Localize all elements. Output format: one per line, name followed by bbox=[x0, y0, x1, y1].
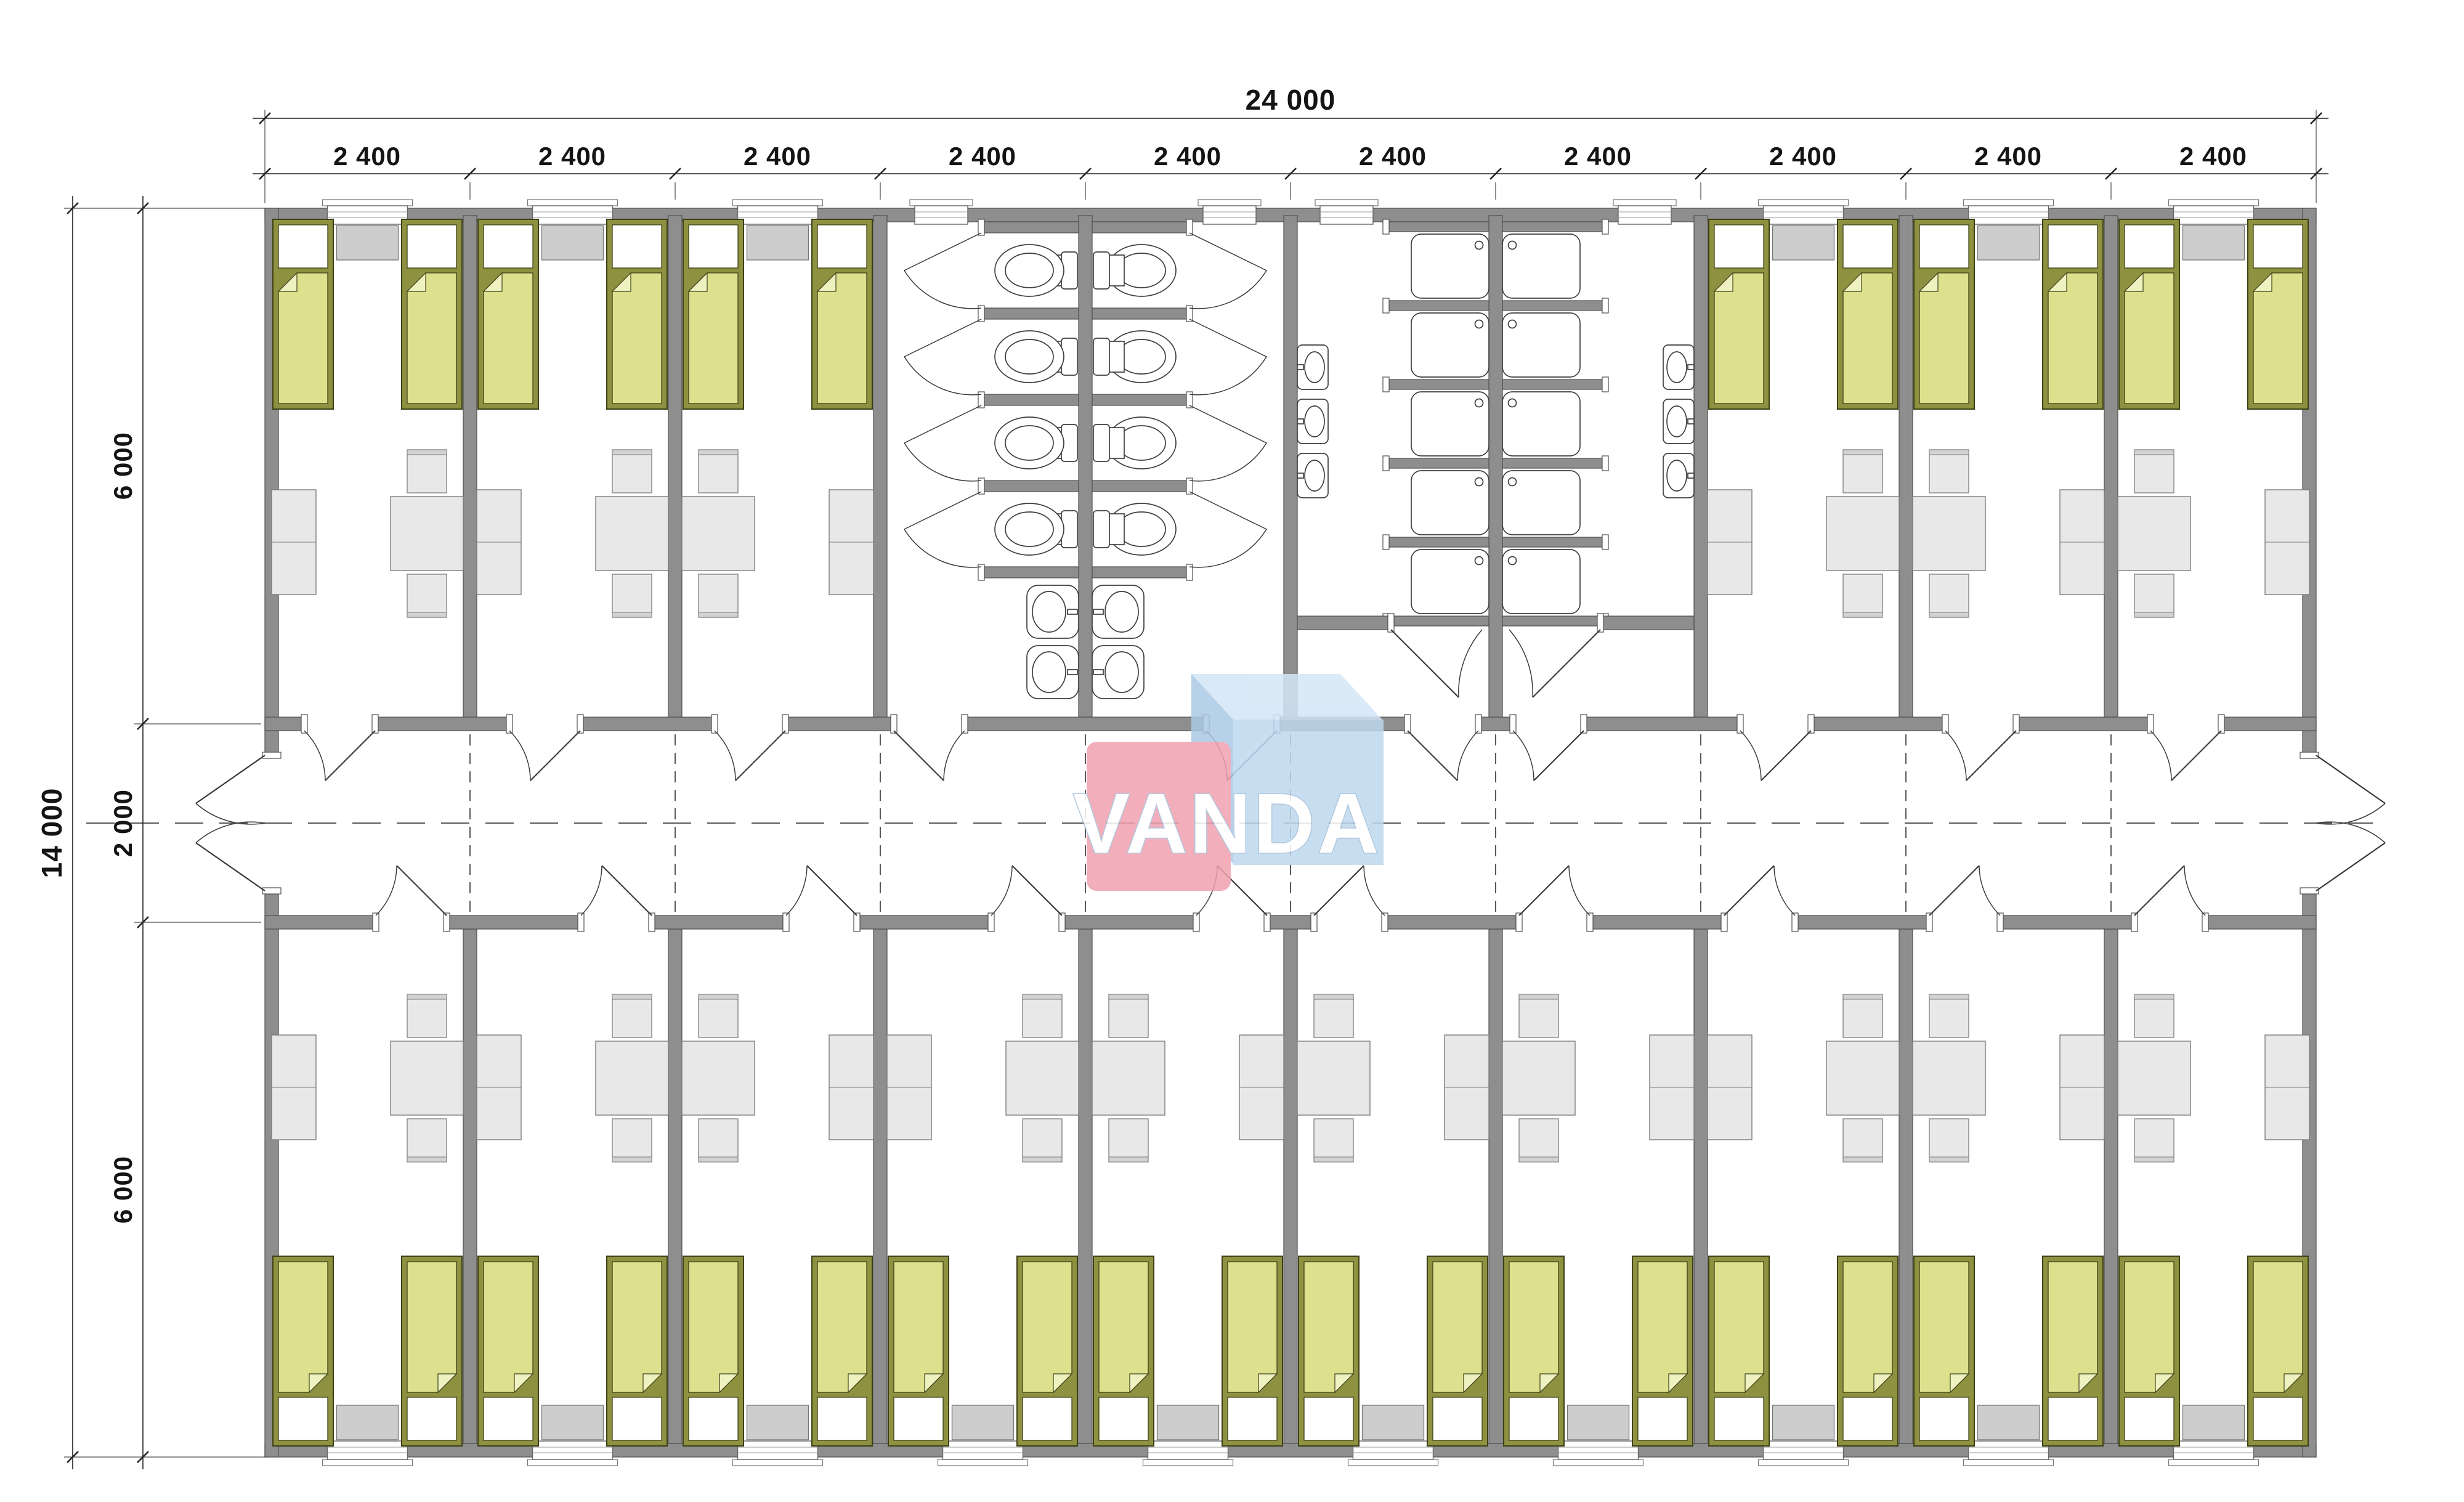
door-jamb bbox=[2300, 888, 2319, 894]
corridor-wall-north bbox=[965, 717, 1206, 731]
bed bbox=[1914, 219, 1974, 409]
bed-blanket bbox=[1714, 273, 1764, 404]
partition-wall bbox=[1899, 216, 1913, 717]
window bbox=[1148, 1441, 1228, 1459]
chair-back bbox=[1109, 1157, 1148, 1162]
wardrobe bbox=[477, 490, 521, 595]
shower-divider bbox=[1502, 380, 1605, 389]
bed-pillow bbox=[2048, 1397, 2097, 1440]
wardrobe bbox=[1445, 1035, 1489, 1140]
chair-back bbox=[612, 450, 652, 455]
shower-tray bbox=[1502, 313, 1580, 377]
table bbox=[1006, 1041, 1079, 1115]
door-jamb bbox=[1059, 913, 1065, 932]
bed bbox=[683, 1256, 744, 1446]
wc-stall-divider bbox=[981, 567, 1079, 578]
bed-pillow bbox=[1714, 1397, 1764, 1440]
door-swing bbox=[1364, 866, 1385, 915]
chair bbox=[2134, 994, 2174, 1037]
tap bbox=[1068, 609, 1077, 614]
bed-blanket bbox=[817, 273, 867, 404]
chair bbox=[699, 450, 738, 493]
shower-divider bbox=[1386, 301, 1489, 311]
chair bbox=[1314, 1119, 1353, 1162]
partition-wall bbox=[668, 216, 682, 717]
partition-wall bbox=[873, 216, 887, 717]
radiator bbox=[1978, 225, 2040, 260]
window bbox=[1203, 206, 1256, 224]
sink-bowl bbox=[1667, 460, 1687, 491]
shower-divider bbox=[1386, 380, 1489, 389]
bed bbox=[1093, 1256, 1154, 1446]
shower-drain bbox=[1475, 320, 1483, 328]
door-jamb bbox=[577, 715, 583, 733]
bed-pillow bbox=[1228, 1397, 1277, 1440]
radiator bbox=[1773, 225, 1834, 260]
chair-back bbox=[407, 612, 447, 617]
door-jamb bbox=[1383, 219, 1389, 234]
module-dimension: 2 400 bbox=[1769, 142, 1837, 171]
door-leaf bbox=[1724, 866, 1774, 915]
door-swing bbox=[1945, 731, 1966, 781]
window-sill bbox=[1964, 1459, 2054, 1466]
shower-drain bbox=[1509, 557, 1517, 565]
door-jamb bbox=[1383, 298, 1389, 313]
shower-divider bbox=[1502, 537, 1605, 547]
door-jamb bbox=[649, 913, 655, 932]
bed-pillow bbox=[817, 1397, 867, 1440]
bed bbox=[888, 1256, 949, 1446]
bed-blanket bbox=[1228, 1262, 1277, 1392]
window-sill bbox=[1759, 200, 1849, 206]
bed-pillow bbox=[407, 1397, 456, 1440]
bed-pillow bbox=[2125, 225, 2174, 268]
basin-bowl bbox=[1032, 652, 1066, 692]
chair bbox=[612, 1119, 652, 1162]
bed-pillow bbox=[1843, 1397, 1892, 1440]
corridor-wall-south bbox=[1795, 915, 1929, 929]
window bbox=[533, 1441, 613, 1459]
door-jamb bbox=[1382, 913, 1388, 932]
chair bbox=[1843, 450, 1882, 493]
shower-vestibule-wall bbox=[1297, 616, 1391, 630]
wc-stall-divider bbox=[1092, 567, 1189, 578]
door-swing bbox=[581, 866, 602, 915]
module-dimension: 2 400 bbox=[1564, 142, 1632, 171]
shower-divider bbox=[1502, 222, 1605, 232]
door-jamb bbox=[2013, 715, 2019, 733]
corridor-wall-south bbox=[1267, 915, 1314, 929]
door-jamb bbox=[1926, 913, 1932, 932]
partition-wall bbox=[463, 929, 477, 1443]
door-jamb bbox=[262, 888, 281, 894]
table bbox=[2118, 497, 2190, 570]
door-leaf bbox=[602, 866, 652, 915]
door-leaf bbox=[1012, 866, 1062, 915]
bed-pillow bbox=[817, 225, 867, 268]
door-leaf bbox=[1314, 866, 1364, 915]
floor-plan-page: 24 000 2 400 2 400 2 400 2 400 2 400 2 4… bbox=[0, 0, 2464, 1502]
door-jamb bbox=[444, 913, 450, 932]
partition-wall bbox=[1284, 216, 1297, 717]
door-leaf bbox=[530, 731, 580, 781]
bed-blanket bbox=[1714, 1262, 1764, 1392]
window-sill bbox=[1759, 1459, 1849, 1466]
radiator bbox=[337, 1405, 399, 1440]
table bbox=[391, 497, 463, 570]
window-sill bbox=[733, 200, 823, 206]
chair-back bbox=[407, 450, 447, 455]
bed bbox=[2043, 1256, 2103, 1446]
door-swing bbox=[196, 803, 265, 824]
chair-back bbox=[1519, 994, 1558, 999]
chair-back bbox=[2134, 994, 2174, 999]
table bbox=[2118, 1041, 2190, 1115]
corridor-wall-south bbox=[2205, 915, 2316, 929]
corridor-wall-south bbox=[1590, 915, 1724, 929]
door-jamb bbox=[373, 913, 379, 932]
radiator bbox=[542, 1405, 604, 1440]
door-swing bbox=[944, 731, 965, 781]
chair-back bbox=[1843, 450, 1882, 455]
door-swing bbox=[1979, 866, 2000, 915]
wardrobe bbox=[2265, 1035, 2309, 1140]
chair bbox=[2134, 574, 2174, 617]
chair bbox=[407, 574, 447, 617]
door-jamb bbox=[1602, 535, 1608, 550]
door-swing bbox=[991, 866, 1012, 915]
door-leaf bbox=[325, 731, 375, 781]
bed-pillow bbox=[689, 1397, 738, 1440]
bed-pillow bbox=[1919, 225, 1969, 268]
door-jamb bbox=[1510, 715, 1516, 733]
door-leaf bbox=[397, 866, 447, 915]
chair-back bbox=[2134, 450, 2174, 455]
shower-divider bbox=[1386, 537, 1489, 547]
corridor-wall-south bbox=[652, 915, 786, 929]
door-jamb bbox=[783, 913, 789, 932]
window bbox=[1558, 1441, 1639, 1459]
bed-pillow bbox=[612, 1397, 662, 1440]
chair bbox=[612, 574, 652, 617]
bed-pillow bbox=[2253, 225, 2303, 268]
door-swing bbox=[1569, 866, 1590, 915]
shower-drain bbox=[1475, 242, 1483, 250]
chair bbox=[612, 450, 652, 493]
corridor-wall-north bbox=[265, 717, 304, 731]
door-jamb bbox=[711, 715, 718, 733]
chair-back bbox=[612, 994, 652, 999]
window-sill bbox=[323, 200, 413, 206]
bed-pillow bbox=[484, 225, 533, 268]
corridor-wall-north bbox=[1584, 717, 1740, 731]
shower-tray bbox=[1502, 234, 1580, 298]
module-dimension: 2 400 bbox=[744, 142, 811, 171]
table bbox=[1913, 497, 1985, 570]
shower-drain bbox=[1475, 478, 1483, 486]
floor-plan-drawing: 24 000 2 400 2 400 2 400 2 400 2 400 2 4… bbox=[0, 0, 2464, 1502]
door-leaf bbox=[196, 843, 265, 891]
chair-back bbox=[1519, 1157, 1558, 1162]
door-leaf bbox=[2316, 843, 2385, 891]
corridor-wall-north bbox=[1811, 717, 1945, 731]
corridor-wall-south bbox=[447, 915, 581, 929]
shower-divider bbox=[1386, 222, 1489, 232]
module-dimension: 2 400 bbox=[333, 142, 401, 171]
total-depth-dimension: 14 000 bbox=[36, 788, 68, 879]
bed-pillow bbox=[1099, 1397, 1148, 1440]
window-sill bbox=[1964, 200, 2054, 206]
radiator bbox=[542, 225, 604, 260]
chair-back bbox=[1929, 612, 1969, 617]
door-jamb bbox=[2202, 913, 2208, 932]
door-swing bbox=[1459, 630, 1482, 697]
door-leaf bbox=[894, 731, 944, 781]
sink bbox=[1663, 453, 1694, 498]
sink bbox=[1297, 453, 1328, 498]
bed-blanket bbox=[1919, 1262, 1969, 1392]
door-swing bbox=[509, 731, 530, 781]
radiator bbox=[2183, 1405, 2245, 1440]
wc-stall-door bbox=[1189, 319, 1266, 395]
door-jamb bbox=[1383, 377, 1389, 392]
chair-back bbox=[1109, 994, 1148, 999]
wardrobe bbox=[829, 490, 873, 595]
chair bbox=[2134, 1119, 2174, 1162]
table bbox=[596, 497, 668, 570]
tap bbox=[1688, 419, 1694, 424]
bed bbox=[402, 1256, 462, 1446]
partition-wall bbox=[1694, 929, 1708, 1443]
door-jamb bbox=[1737, 715, 1743, 733]
shower-drain bbox=[1475, 557, 1483, 565]
door-leaf bbox=[1534, 731, 1584, 781]
chair bbox=[1519, 1119, 1558, 1162]
radiator bbox=[1568, 1405, 1629, 1440]
bed bbox=[1299, 1256, 1359, 1446]
window bbox=[1969, 206, 2049, 224]
window-sill bbox=[528, 200, 618, 206]
bed bbox=[273, 219, 333, 409]
corridor-wall-south bbox=[857, 915, 991, 929]
chair-back bbox=[612, 612, 652, 617]
wardrobe bbox=[887, 1035, 931, 1140]
door-jamb bbox=[988, 913, 994, 932]
sink bbox=[1663, 399, 1694, 444]
module-dimension: 2 400 bbox=[949, 142, 1016, 171]
window-sill bbox=[1554, 1459, 1643, 1466]
door-jamb bbox=[1383, 535, 1389, 550]
bed-blanket bbox=[1919, 273, 1969, 404]
bed bbox=[2119, 1256, 2179, 1446]
chair bbox=[1109, 994, 1148, 1037]
chair-back bbox=[1929, 994, 1969, 999]
logo-text: VANDA bbox=[1073, 776, 1381, 871]
chair bbox=[1843, 574, 1882, 617]
bed-blanket bbox=[1023, 1262, 1072, 1392]
wardrobe bbox=[1239, 1035, 1284, 1140]
module-dimension: 2 400 bbox=[2179, 142, 2247, 171]
door-jamb bbox=[854, 913, 860, 932]
partition-wall bbox=[1284, 929, 1297, 1443]
door-leaf bbox=[1519, 866, 1569, 915]
door-swing bbox=[786, 866, 807, 915]
door-jamb bbox=[1597, 614, 1603, 632]
chair bbox=[1929, 574, 1969, 617]
window bbox=[533, 206, 613, 224]
chair bbox=[699, 994, 738, 1037]
window-sill bbox=[1348, 1459, 1438, 1466]
door-swing bbox=[715, 731, 736, 781]
bed-pillow bbox=[1638, 1397, 1687, 1440]
wc-stall-divider bbox=[981, 222, 1079, 233]
bed bbox=[1838, 219, 1898, 409]
depth-segment-dimension: 6 000 bbox=[108, 1156, 137, 1224]
shower-tray bbox=[1502, 550, 1580, 614]
tap bbox=[1297, 473, 1303, 478]
window-sill bbox=[733, 1459, 823, 1466]
wardrobe bbox=[272, 490, 316, 595]
chair bbox=[612, 994, 652, 1037]
chair-back bbox=[407, 994, 447, 999]
door-jamb bbox=[1311, 913, 1317, 932]
door-jamb bbox=[891, 715, 897, 733]
bed-blanket bbox=[612, 1262, 662, 1392]
corridor-wall-south bbox=[265, 915, 376, 929]
chair-back bbox=[1023, 1157, 1062, 1162]
chair bbox=[1843, 994, 1882, 1037]
window bbox=[1320, 206, 1373, 224]
window bbox=[915, 206, 968, 224]
tap bbox=[1688, 473, 1694, 478]
toilet bbox=[995, 245, 1124, 296]
washbasin bbox=[1092, 646, 1144, 699]
door-swing bbox=[2184, 866, 2205, 915]
bed bbox=[1427, 1256, 1488, 1446]
washbasin bbox=[1027, 585, 1079, 638]
basin-bowl bbox=[1105, 591, 1138, 632]
door-leaf bbox=[1761, 731, 1811, 781]
bed-blanket bbox=[1509, 1262, 1558, 1392]
chair-back bbox=[1843, 994, 1882, 999]
bed-pillow bbox=[278, 225, 328, 268]
corridor-wall-north bbox=[375, 717, 509, 731]
module-dimension: 2 400 bbox=[1359, 142, 1427, 171]
bed-blanket bbox=[1843, 273, 1892, 404]
tap bbox=[1297, 419, 1303, 424]
toilet bbox=[995, 503, 1124, 555]
shower-divider bbox=[1502, 616, 1605, 626]
radiator bbox=[1157, 1405, 1219, 1440]
radiator bbox=[747, 1405, 809, 1440]
radiator bbox=[1773, 1405, 1834, 1440]
door-leaf bbox=[196, 755, 265, 803]
wc-stall-divider bbox=[981, 394, 1079, 405]
shower-tray bbox=[1411, 234, 1489, 298]
partition-wall bbox=[1489, 216, 1502, 717]
bed-blanket bbox=[1843, 1262, 1892, 1392]
door-swing bbox=[2316, 803, 2385, 824]
radiator bbox=[1978, 1405, 2040, 1440]
shower-tray bbox=[1411, 392, 1489, 456]
door-swing bbox=[304, 731, 325, 781]
radiator bbox=[337, 225, 399, 260]
wc-stall-door bbox=[904, 405, 981, 481]
bed-pillow bbox=[1714, 225, 1764, 268]
door-swing bbox=[1740, 731, 1761, 781]
toilet-tank bbox=[1093, 338, 1109, 375]
door-swing bbox=[1457, 731, 1478, 781]
chair bbox=[1929, 1119, 1969, 1162]
door-jamb bbox=[372, 715, 378, 733]
wardrobe bbox=[272, 1035, 316, 1140]
door-jamb bbox=[782, 715, 788, 733]
chair-back bbox=[407, 1157, 447, 1162]
window-sill bbox=[1315, 200, 1378, 206]
door-jamb bbox=[262, 752, 281, 758]
basin-bowl bbox=[1032, 591, 1066, 632]
door-leaf bbox=[2171, 731, 2221, 781]
wardrobe bbox=[829, 1035, 873, 1140]
corridor-wall-south bbox=[2000, 915, 2134, 929]
bed-blanket bbox=[1638, 1262, 1687, 1392]
door-swing bbox=[2316, 822, 2385, 843]
chair bbox=[407, 994, 447, 1037]
door-jamb bbox=[578, 913, 584, 932]
window bbox=[943, 1441, 1023, 1459]
shower-drain bbox=[1509, 399, 1517, 407]
tap bbox=[1068, 670, 1077, 675]
module-dimension: 2 400 bbox=[1974, 142, 2042, 171]
door-leaf bbox=[1408, 731, 1457, 781]
partition-wall bbox=[1899, 929, 1913, 1443]
toilet-tank bbox=[1093, 511, 1109, 548]
bed-blanket bbox=[2253, 1262, 2303, 1392]
door-jamb bbox=[1808, 715, 1814, 733]
window bbox=[1353, 1441, 1433, 1459]
bed-pillow bbox=[1843, 225, 1892, 268]
window-sill bbox=[1143, 1459, 1233, 1466]
bed bbox=[2248, 1256, 2308, 1446]
window bbox=[738, 206, 818, 224]
wardrobe bbox=[2265, 490, 2309, 595]
bed-pillow bbox=[1509, 1397, 1558, 1440]
total-width-dimension: 24 000 bbox=[1246, 84, 1336, 116]
shower-divider bbox=[1386, 616, 1489, 626]
table bbox=[682, 1041, 755, 1115]
bed bbox=[2119, 219, 2179, 409]
bed bbox=[1709, 219, 1769, 409]
bed bbox=[2043, 219, 2103, 409]
door-jamb bbox=[301, 715, 307, 733]
chair-back bbox=[699, 994, 738, 999]
window bbox=[1969, 1441, 2049, 1459]
bed bbox=[1017, 1256, 1077, 1446]
chair bbox=[1023, 1119, 1062, 1162]
door-leaf bbox=[807, 866, 857, 915]
window bbox=[328, 1441, 408, 1459]
chair-back bbox=[1314, 1157, 1353, 1162]
tap bbox=[1093, 670, 1103, 675]
bed bbox=[1504, 1256, 1564, 1446]
window-sill bbox=[938, 1459, 1028, 1466]
door-swing bbox=[1513, 731, 1534, 781]
tap bbox=[1297, 365, 1303, 370]
sink-bowl bbox=[1305, 352, 1324, 383]
table bbox=[682, 497, 755, 570]
door-jamb bbox=[1602, 377, 1608, 392]
chair bbox=[699, 1119, 738, 1162]
